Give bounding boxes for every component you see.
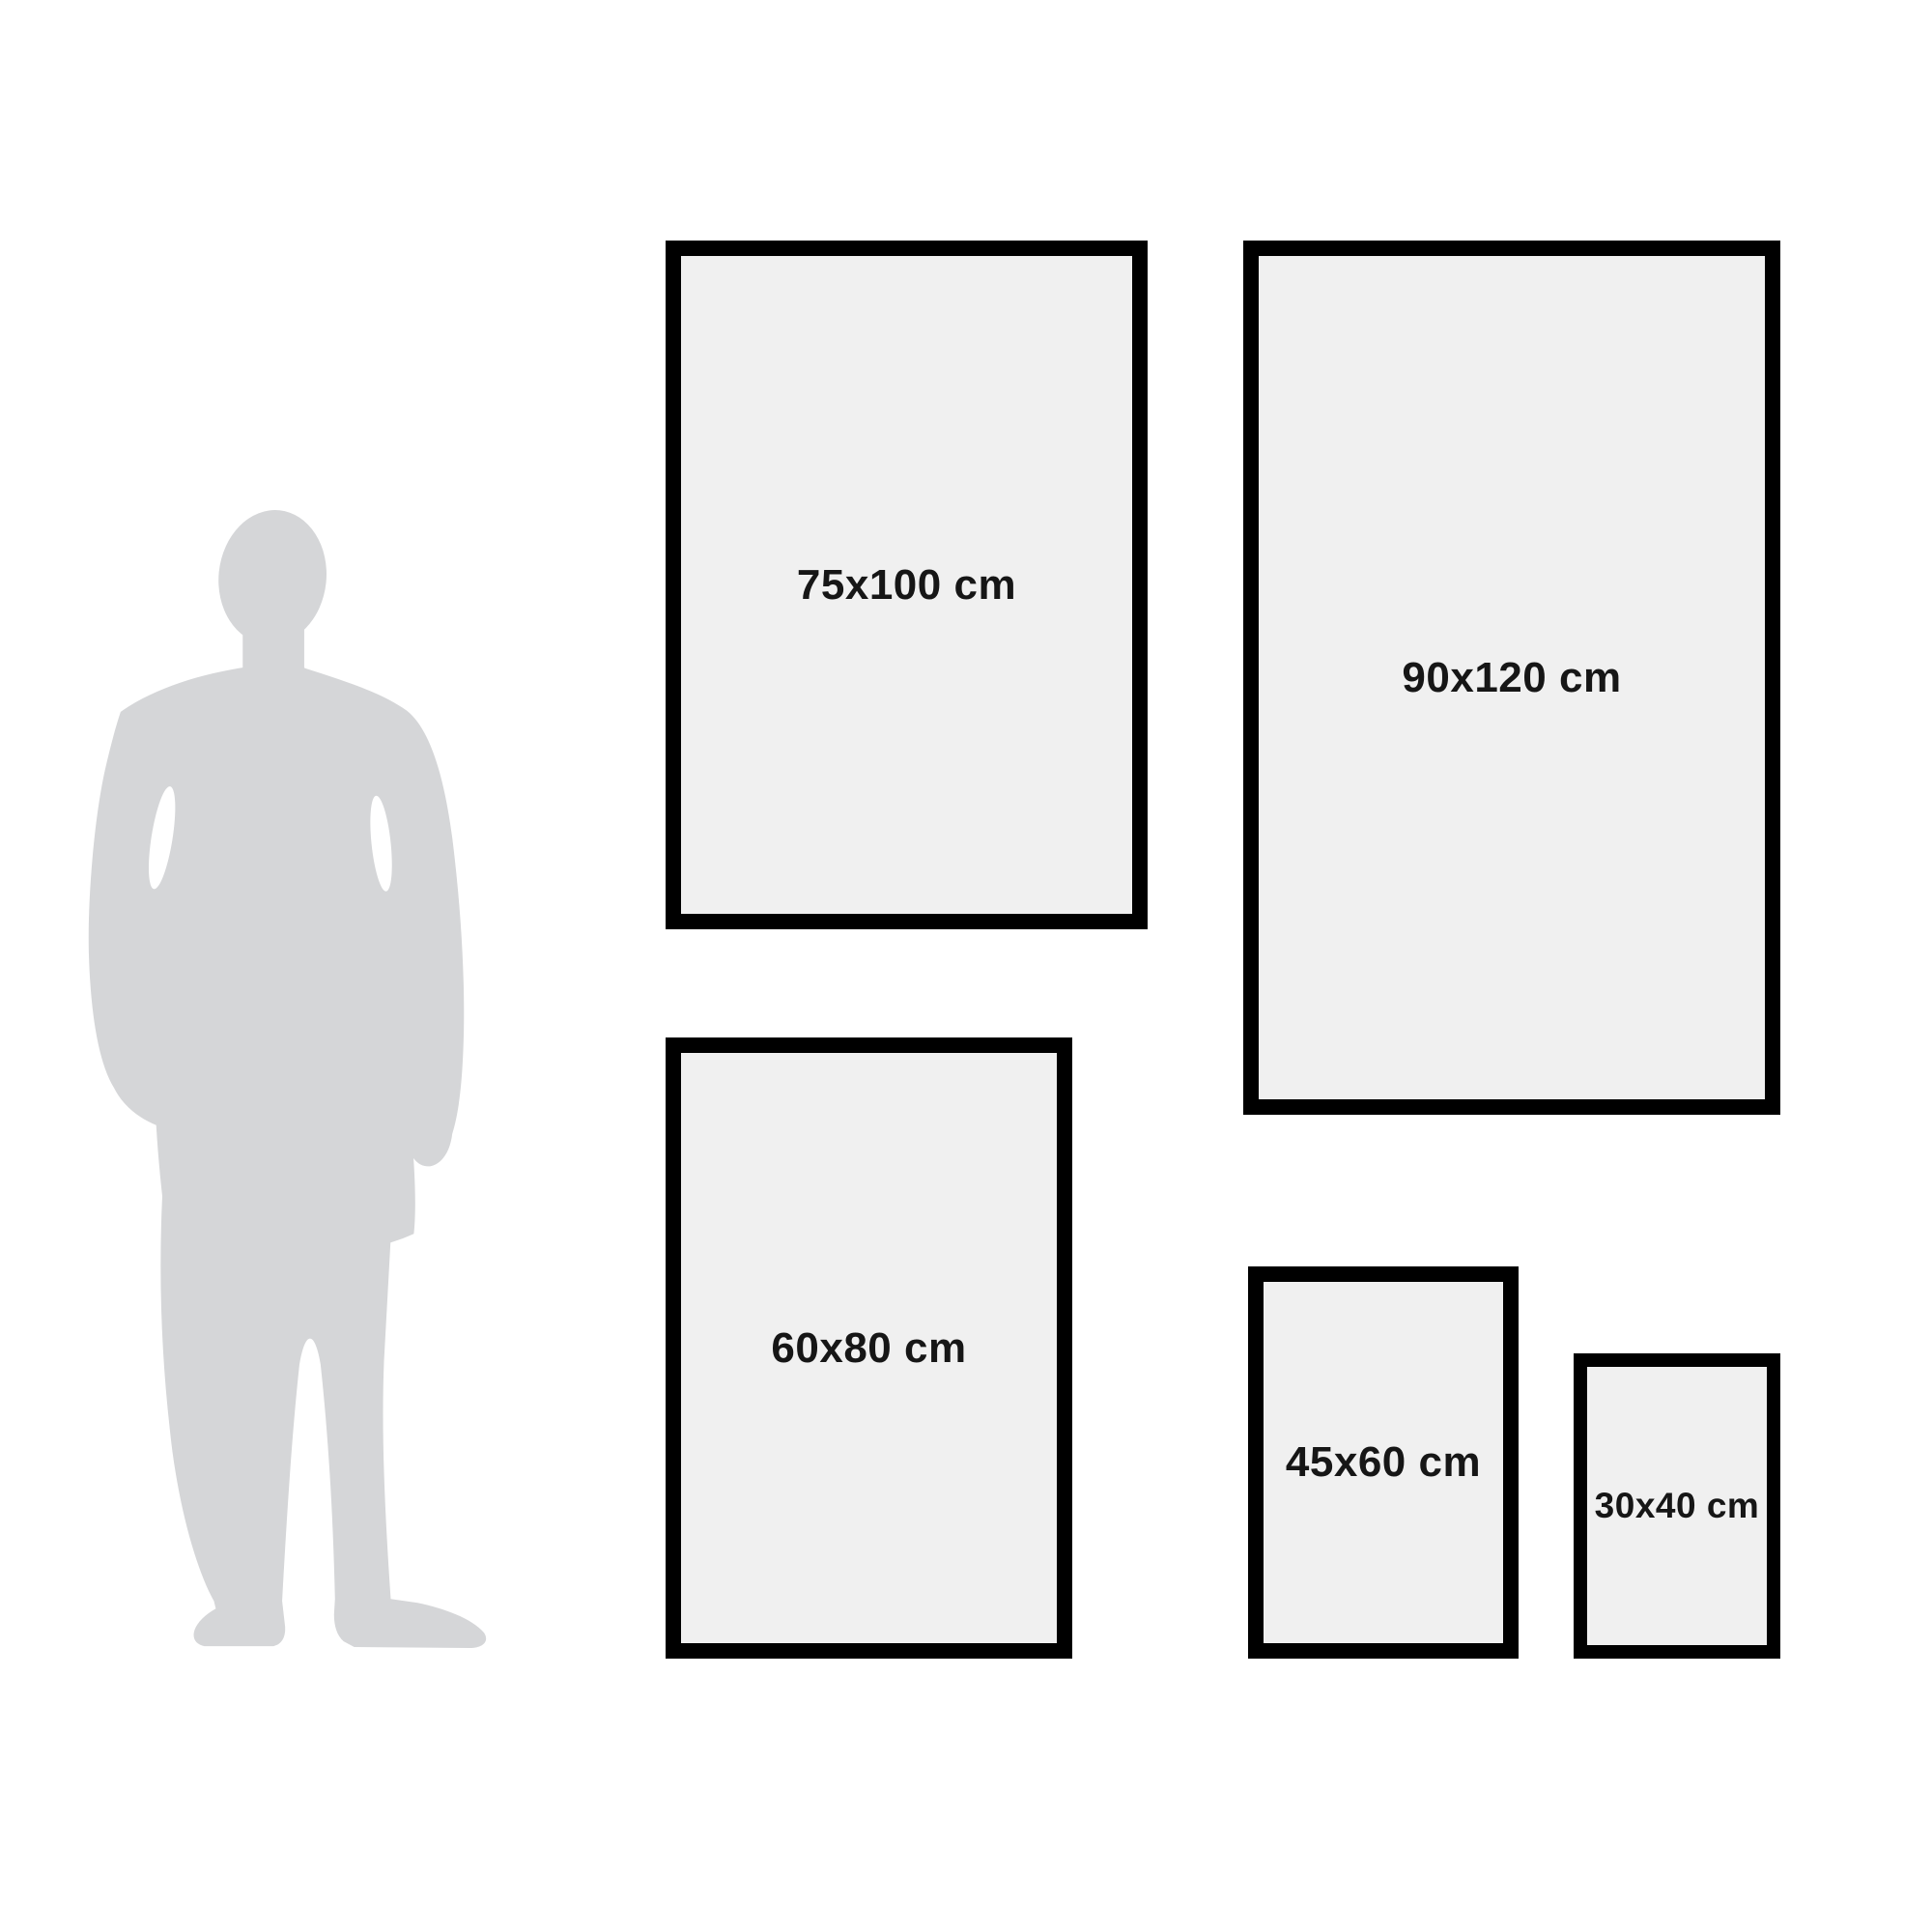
size-label-30x40: 30x40 cm — [1595, 1486, 1760, 1526]
size-label-75x100: 75x100 cm — [797, 561, 1016, 610]
frame-30x40: 30x40 cm — [1574, 1353, 1780, 1659]
man-silhouette-icon — [85, 496, 502, 1659]
frame-60x80: 60x80 cm — [666, 1037, 1072, 1659]
size-label-45x60: 45x60 cm — [1286, 1438, 1481, 1487]
size-label-60x80: 60x80 cm — [771, 1324, 966, 1373]
size-comparison-diagram: 75x100 cm 90x120 cm 60x80 cm 45x60 cm 30… — [0, 0, 1932, 1932]
size-label-90x120: 90x120 cm — [1402, 654, 1621, 702]
frame-75x100: 75x100 cm — [666, 241, 1148, 929]
frame-90x120: 90x120 cm — [1243, 241, 1780, 1115]
frame-45x60: 45x60 cm — [1248, 1266, 1519, 1659]
